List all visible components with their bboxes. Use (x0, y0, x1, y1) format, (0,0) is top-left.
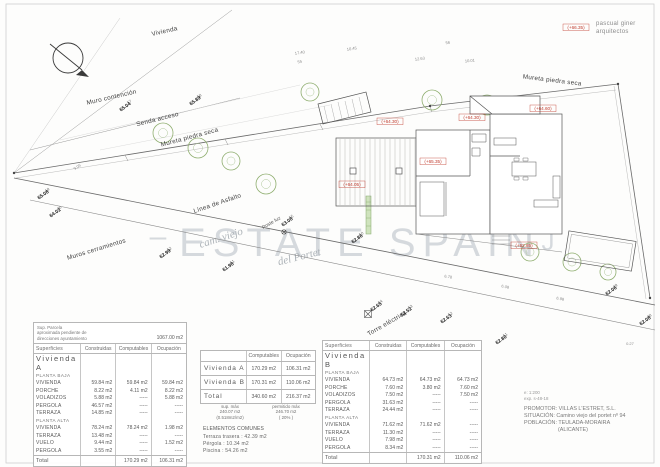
table-cell: ----- (406, 392, 443, 400)
table-cell: 59.84 m2 (80, 380, 115, 388)
limits-note: sup. máx 240.07 m2 (0.518m2/m2) permitid… (202, 404, 314, 420)
table-cell: VOLADIZOS (323, 392, 369, 400)
table-cell (151, 372, 186, 380)
dimension-label: 10.01 (465, 57, 476, 63)
table-cell (406, 351, 443, 369)
table-cell: ----- (444, 437, 481, 445)
table-cell: Vivienda B (201, 376, 246, 389)
table-cell (444, 351, 481, 369)
table-row: PLANTA ALTA (323, 414, 481, 422)
hedge (366, 196, 371, 234)
table-cell: 71.62 m2 (369, 422, 406, 430)
table-cell: Vivienda A (201, 362, 246, 375)
table-cell (444, 369, 481, 377)
table-cell: 8.34 m2 (369, 444, 406, 452)
table-cell: 7.60 m2 (369, 384, 406, 392)
level-label: (+64.05) (343, 182, 361, 187)
table-row: Vivienda B170.31 m2110.06 m2 (201, 375, 315, 389)
parcel-area: 1067.00 m2 (157, 335, 183, 341)
table-vivienda-a: Sup. Parcela aproximada pendiente de dir… (33, 322, 187, 467)
table-vivienda-b: SuperficiesConstruidasComputablesOcupaci… (322, 340, 482, 464)
table-cell: 64.73 m2 (444, 377, 481, 385)
table-cell: ----- (151, 432, 186, 440)
table-cell: VUELO (34, 440, 80, 448)
table-cell: TERRAZA (34, 410, 80, 418)
common-element-item: Pérgola : 10.34 m2 (203, 441, 323, 448)
table-row: SuperficiesConstruidasComputablesOcupaci… (34, 344, 186, 354)
table-cell: 170.31 m2 (406, 453, 443, 463)
table-cell: VIVIENDA (34, 380, 80, 388)
table-row: Total170.31 m2110.06 m2 (323, 452, 481, 463)
table-cell: 170.29 m2 (115, 456, 150, 466)
table-cell: 5.88 m2 (151, 395, 186, 403)
table-cell: Total (201, 390, 246, 403)
table-cell (151, 354, 186, 372)
table-cell (80, 417, 115, 425)
table-row: TERRAZA13.48 m2---------- (34, 432, 186, 440)
table-cell: 8.22 m2 (80, 387, 115, 395)
tree-icon (222, 152, 240, 170)
table-cell: 8.22 m2 (151, 387, 186, 395)
table-cell (369, 453, 406, 463)
table-cell: 110.06 m2 (281, 376, 316, 389)
title-block: e: 1:200 exp. s-48-18 PROMOTOR: VILLAS L… (524, 390, 656, 434)
north-arrow-icon (50, 43, 89, 77)
tree-icon (301, 83, 319, 101)
table-cell: 4.11 m2 (115, 387, 150, 395)
table-row: VUELO7.98 m2---------- (323, 437, 481, 445)
table-cell: 71.62 m2 (406, 422, 443, 430)
table-cell: PERGOLA (323, 399, 369, 407)
table-row: TERRAZA11.30 m2---------- (323, 429, 481, 437)
table-cell: 7.50 m2 (369, 392, 406, 400)
architect-stamp: pascual giner arquitectos (596, 20, 636, 36)
table-row: PORCHE8.22 m24.11 m28.22 m2 (34, 387, 186, 395)
table-row: PERGOLA46.57 m2---------- (34, 402, 186, 410)
table-cell (151, 417, 186, 425)
table-cell: PERGOLA (34, 447, 80, 455)
common-element-item: Piscina : 54.26 m2 (203, 448, 323, 455)
table-cell (369, 351, 406, 369)
table-cell: PERGOLA (323, 444, 369, 452)
table-cell: 340.60 m2 (246, 390, 281, 403)
table-cell: Ocupación (151, 344, 186, 353)
table-cell: ----- (115, 395, 150, 403)
plan-label: Línea de Asfalto (193, 192, 243, 215)
table-cell: Computables (115, 344, 150, 353)
table-cell: Vivienda A (34, 354, 80, 372)
table-cell: TERRAZA (34, 432, 80, 440)
watermark-dash: – (150, 220, 167, 253)
table-cell: 3.55 m2 (80, 447, 115, 455)
dimension-label: 55 (297, 59, 303, 65)
table-cell: 11.30 m2 (369, 429, 406, 437)
table-row: SuperficiesConstruidasComputablesOcupaci… (323, 341, 481, 351)
table-cell: 13.48 m2 (80, 432, 115, 440)
common-element-item: Terraza trasera : 42.39 m2 (203, 434, 323, 441)
architect-name: pascual giner (596, 20, 636, 28)
table-row: PLANTA ALTA (34, 417, 186, 425)
table-cell: Computables (246, 351, 281, 361)
table-cell: 78.24 m2 (80, 425, 115, 433)
table-cell: ----- (406, 407, 443, 415)
table-cell: 106.31 m2 (281, 362, 316, 375)
table-summary: ComputablesOcupaciónVivienda A170.29 m21… (200, 350, 316, 404)
table-cell: VIVIENDA (323, 377, 369, 385)
table-row: Total170.29 m2106.31 m2 (34, 455, 186, 466)
dimension-label: 12.63 (415, 55, 426, 61)
table-cell: ----- (115, 432, 150, 440)
table-cell: 31.63 m2 (369, 399, 406, 407)
table-row: PORCHE7.60 m23.80 m27.60 m2 (323, 384, 481, 392)
table-cell: ----- (406, 437, 443, 445)
table-cell: ----- (406, 444, 443, 452)
table-row: Total340.60 m2216.37 m2 (201, 389, 315, 403)
promotor-line: PROMOTOR: VILLAS L'ESTRET, S.L. (524, 406, 656, 413)
table-cell: TERRAZA (323, 407, 369, 415)
table-cell: ----- (151, 410, 186, 418)
table-row: VIVIENDA64.73 m264.73 m264.73 m2 (323, 377, 481, 385)
table-cell: ----- (444, 399, 481, 407)
table-cell: 5.88 m2 (80, 395, 115, 403)
plan-label: Muros cerramientos (66, 237, 126, 262)
table-cell (115, 417, 150, 425)
table-cell: Construidas (369, 341, 406, 350)
table-cell: PERGOLA (34, 402, 80, 410)
level-label: (+66.35) (567, 25, 585, 30)
tree-inner-icon (604, 268, 611, 275)
table-cell: 24.44 m2 (369, 407, 406, 415)
table-cell: 7.60 m2 (444, 384, 481, 392)
table-row: PERGOLA3.55 m2---------- (34, 447, 186, 455)
table-cell: 216.37 m2 (281, 390, 316, 403)
table-cell (406, 414, 443, 422)
table-row: PERGOLA8.34 m2---------- (323, 444, 481, 452)
table-cell: VOLADIZOS (34, 395, 80, 403)
level-label: (+62.85) (515, 243, 533, 248)
table-cell (369, 414, 406, 422)
table-cell: 1.52 m2 (151, 440, 186, 448)
table-cell: VUELO (323, 437, 369, 445)
table-cell: VIVIENDA (34, 425, 80, 433)
architect-title: arquitectos (596, 28, 636, 36)
table-cell: TERRAZA (323, 429, 369, 437)
situacion-line: SITUACIÓN: Camino viejo del portet nº 94 (524, 413, 656, 420)
table-cell: ----- (115, 402, 150, 410)
table-cell: 9.44 m2 (80, 440, 115, 448)
tree-icon (422, 90, 442, 110)
table-cell: ----- (115, 410, 150, 418)
provincia-line: (ALICANTE) (524, 427, 656, 434)
table-cell: ----- (151, 402, 186, 410)
table-cell (115, 372, 150, 380)
level-label: (+65.35) (424, 159, 442, 164)
plan-label: Vivienda (151, 25, 179, 38)
table-row: VOLADIZOS7.50 m2-----7.50 m2 (323, 392, 481, 400)
table-cell: ----- (406, 429, 443, 437)
tree-icon (256, 174, 276, 194)
table-cell: 7.98 m2 (369, 437, 406, 445)
table-cell (369, 369, 406, 377)
plan-label: Senda acceso (136, 111, 180, 128)
tree-inner-icon (306, 88, 314, 96)
common-elements-title: ELEMENTOS COMUNES (203, 426, 323, 433)
table-cell: ----- (444, 407, 481, 415)
drawing-sheet: –ESTATE SPAINJcam. viejodel Portet (0, 0, 660, 467)
table-row: TERRAZA14.85 m2---------- (34, 410, 186, 418)
table-row: Vivienda A170.29 m2106.31 m2 (201, 361, 315, 375)
table-cell: 170.29 m2 (246, 362, 281, 375)
electric-tower-icon (365, 311, 372, 318)
table-cell: PLANTA ALTA (323, 414, 369, 422)
table-cell: 7.50 m2 (444, 392, 481, 400)
table-row: Vivienda B (323, 351, 481, 369)
table-row: VOLADIZOS5.88 m2-----5.88 m2 (34, 395, 186, 403)
table-cell: 46.57 m2 (80, 402, 115, 410)
table-cell: 64.73 m2 (406, 377, 443, 385)
table-cell: Total (34, 456, 80, 466)
parcel-note: Sup. Parcela aproximada pendiente de dir… (37, 325, 87, 341)
plan-label: Mureta piedra seca (160, 126, 219, 148)
dimension-label: 10.45 (346, 45, 357, 52)
table-row: VUELO9.44 m2-----1.52 m2 (34, 440, 186, 448)
table-cell: Superficies (323, 341, 369, 350)
table-row: VIVIENDA78.24 m278.24 m21.98 m2 (34, 425, 186, 433)
table-cell: 59.84 m2 (151, 380, 186, 388)
table-cell: Ocupación (444, 341, 481, 350)
table-cell: PLANTA ALTA (34, 417, 80, 425)
table-row: ComputablesOcupación (201, 351, 315, 361)
dimension-label: 17.40 (294, 49, 305, 56)
table-cell: 3.80 m2 (406, 384, 443, 392)
tree-inner-icon (428, 96, 437, 105)
table-row: PLANTA BAJA (34, 372, 186, 380)
table-cell (80, 456, 115, 466)
level-label: (+64.30) (463, 115, 481, 120)
table-row: VIVIENDA71.62 m271.62 m2----- (323, 422, 481, 430)
dimension-label: 6.98 (556, 295, 565, 302)
table-row: Vivienda A (34, 354, 186, 372)
table-cell (80, 372, 115, 380)
level-label: (+64.60) (534, 106, 552, 111)
dimension-label: 0.27 (626, 341, 635, 346)
level-label: (+64.30) (381, 119, 399, 124)
table-cell: 14.85 m2 (80, 410, 115, 418)
plan-label: Mureta piedra seca (522, 73, 582, 87)
table-cell: ----- (444, 422, 481, 430)
table-cell (80, 354, 115, 372)
table-cell: Vivienda B (323, 351, 369, 369)
scale-and-exp: e: 1:200 exp. s-48-18 (524, 390, 656, 401)
table-cell: PORCHE (34, 387, 80, 395)
dimension-label: 6.08 (501, 283, 510, 290)
table-cell (406, 369, 443, 377)
tree-inner-icon (227, 157, 235, 165)
limit-computable: sup. máx 240.07 m2 (0.518m2/m2) (202, 404, 258, 420)
table-cell: ----- (115, 447, 150, 455)
table-cell: Total (323, 453, 369, 463)
table-cell: 78.24 m2 (115, 425, 150, 433)
table-row: PERGOLA31.63 m2---------- (323, 399, 481, 407)
table-cell: 110.06 m2 (444, 453, 481, 463)
tree-inner-icon (262, 180, 271, 189)
table-row: PLANTA BAJA (323, 369, 481, 377)
common-elements: ELEMENTOS COMUNES Terraza trasera : 42.3… (203, 426, 323, 455)
limit-ocupacion: permitido máx 246.70 m2 ( 20% ) (258, 404, 314, 420)
table-cell: 106.31 m2 (151, 456, 186, 466)
tree-inner-icon (159, 129, 168, 138)
table-row: TERRAZA24.44 m2---------- (323, 407, 481, 415)
table-cell: 170.31 m2 (246, 376, 281, 389)
table-cell: Computables (406, 341, 443, 350)
table-cell: PLANTA BAJA (34, 372, 80, 380)
poblacion-line: POBLACIÓN: TEULADA-MORAIRA (524, 420, 656, 427)
table-cell: Ocupación (281, 351, 316, 361)
table-cell: VIVIENDA (323, 422, 369, 430)
table-cell (444, 414, 481, 422)
table-cell: ----- (444, 429, 481, 437)
table-cell: Construidas (80, 344, 115, 353)
expedient-number: exp. s-48-18 (524, 396, 656, 402)
table-cell: ----- (151, 447, 186, 455)
table-cell: PORCHE (323, 384, 369, 392)
dimension-label: 56 (445, 40, 451, 46)
table-row: VIVIENDA59.84 m259.84 m259.84 m2 (34, 380, 186, 388)
table-cell: ----- (406, 399, 443, 407)
table-cell: 1.98 m2 (151, 425, 186, 433)
table-cell: Superficies (34, 344, 80, 353)
table-cell: 59.84 m2 (115, 380, 150, 388)
table-cell: ----- (115, 440, 150, 448)
table-cell: PLANTA BAJA (323, 369, 369, 377)
table-cell (201, 351, 246, 361)
tree-inner-icon (194, 144, 203, 153)
table-cell: 64.73 m2 (369, 377, 406, 385)
table-cell: ----- (444, 444, 481, 452)
dimension-label: 6.78 (444, 273, 453, 279)
table-cell (115, 354, 150, 372)
